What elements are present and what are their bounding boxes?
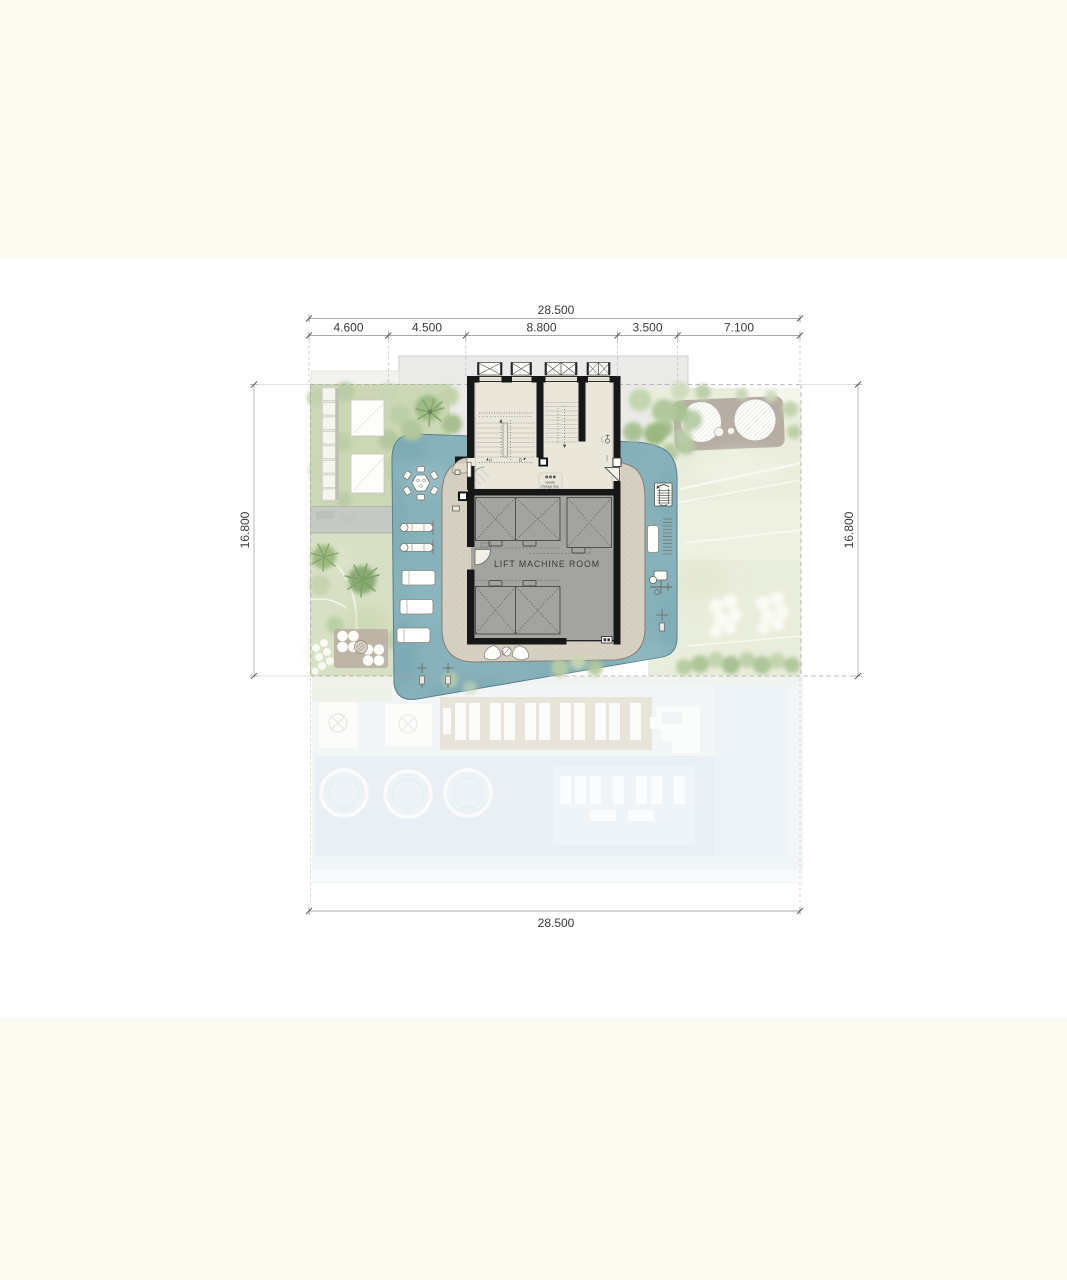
svg-text:8.800: 8.800 [526,321,556,335]
svg-text:D: D [519,458,522,463]
svg-text:16.800: 16.800 [842,511,856,548]
svg-text:LIFT MACHINE ROOM: LIFT MACHINE ROOM [494,559,600,569]
svg-text:4.600: 4.600 [333,321,363,335]
svg-text:16.800: 16.800 [238,511,252,548]
svg-text:3.500: 3.500 [632,321,662,335]
svg-text:7.100: 7.100 [724,321,754,335]
svg-text:U: U [489,458,492,463]
svg-text:xxxx: xxxx [605,455,609,462]
svg-text:28.500: 28.500 [538,303,575,317]
svg-text:4.500: 4.500 [412,321,442,335]
svg-text:Refuge hse: Refuge hse [541,485,558,489]
svg-text:28.500: 28.500 [538,916,575,930]
